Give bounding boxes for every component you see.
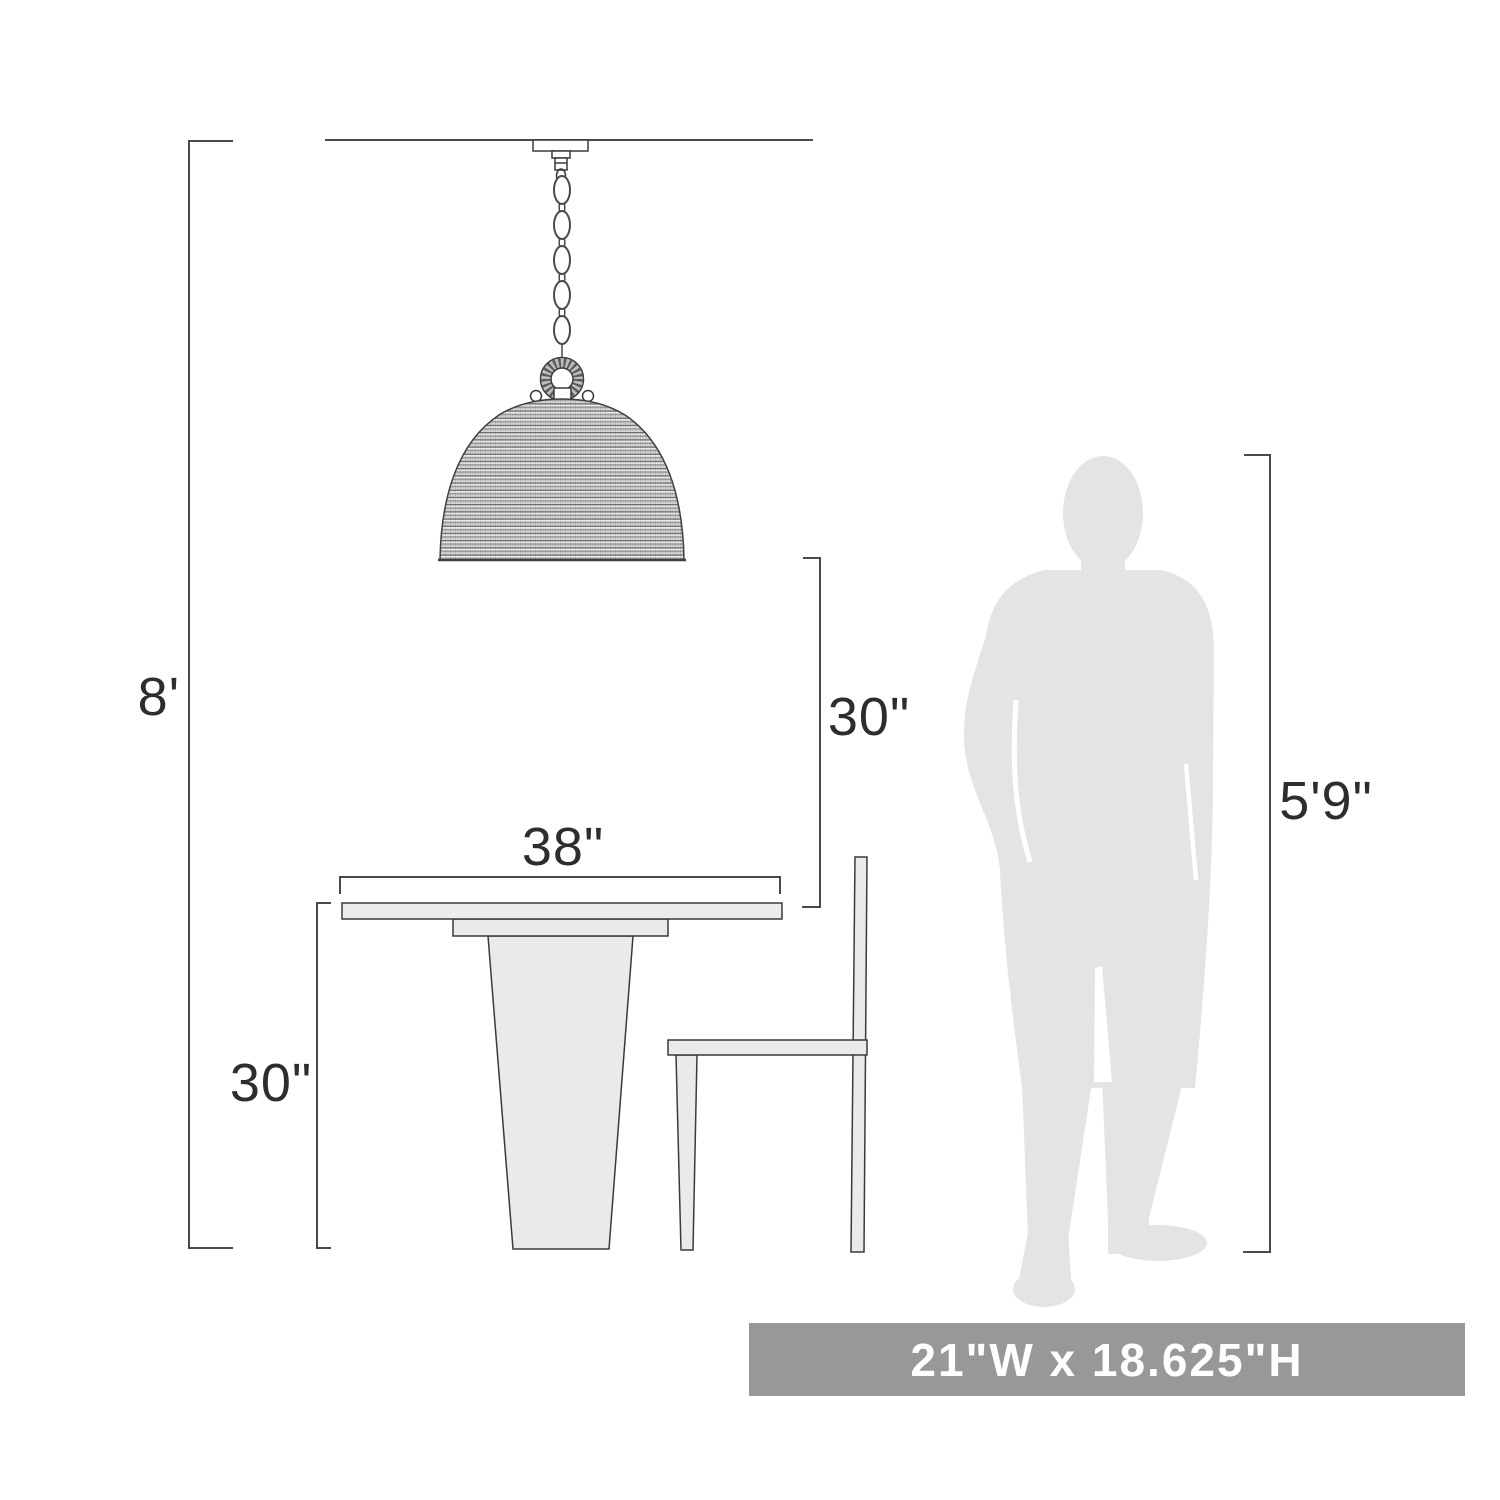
- pendant-to-table-label: 30": [789, 686, 949, 748]
- chair-front-leg: [676, 1055, 697, 1250]
- person-back-leg: [1102, 1078, 1184, 1222]
- diagram-canvas: 8' 30" 38" 30" 5'9" 21"W x 18.625"H: [0, 0, 1500, 1500]
- pendant-chain: [554, 176, 570, 360]
- pendant-dome-shade: [440, 399, 684, 560]
- person-front-leg: [1022, 1082, 1092, 1240]
- size-banner: 21"W x 18.625"H: [749, 1323, 1465, 1396]
- person-front-shoe: [1013, 1271, 1075, 1307]
- ceiling-height-label: 8': [60, 666, 180, 728]
- table-height-label: 30": [191, 1052, 351, 1114]
- table-apron: [453, 919, 668, 936]
- table-width-label: 38": [483, 816, 643, 878]
- pendant-fixture: [438, 140, 686, 560]
- person-height-bracket: [1243, 455, 1270, 1252]
- person-silhouette: [964, 456, 1214, 1307]
- person-back-shoe: [1109, 1225, 1207, 1261]
- chair-seat: [668, 1040, 867, 1055]
- table-width-bracket: [340, 877, 780, 894]
- table-top: [342, 903, 782, 919]
- diagram-artwork: [0, 0, 1500, 1500]
- person-height-label: 5'9": [1236, 770, 1416, 832]
- table-pedestal: [488, 936, 633, 1249]
- person-torso: [964, 570, 1214, 1088]
- size-banner-text: 21"W x 18.625"H: [910, 1333, 1303, 1387]
- dining-table: [342, 903, 782, 1249]
